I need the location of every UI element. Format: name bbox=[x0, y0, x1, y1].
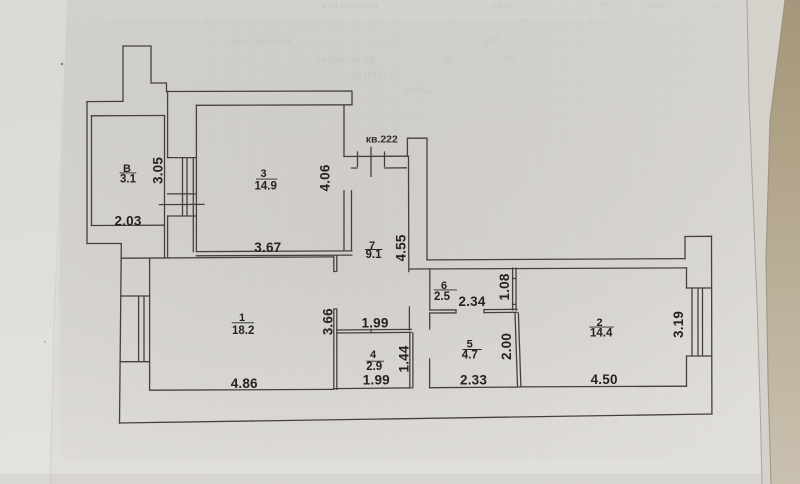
svg-text:2.5: 2.5 bbox=[434, 291, 451, 303]
svg-text:18.2: 18.2 bbox=[232, 325, 254, 337]
svg-text:1.99: 1.99 bbox=[362, 315, 389, 330]
svg-text:14.4: 14.4 bbox=[590, 328, 613, 340]
svg-text:своб: своб bbox=[648, 1, 666, 10]
svg-text:з 667вч: з 667вч bbox=[404, 87, 431, 96]
svg-text:вт: вт bbox=[390, 36, 398, 45]
svg-text:ол: ол bbox=[520, 16, 529, 25]
svg-text:пв: пв bbox=[712, 1, 721, 10]
svg-text:3.1: 3.1 bbox=[120, 173, 137, 185]
svg-text:тд: тд bbox=[680, 15, 688, 24]
svg-text:3.05: 3.05 bbox=[150, 157, 165, 184]
svg-text:9.1: 9.1 bbox=[366, 249, 383, 261]
svg-text:4: 4 bbox=[370, 349, 377, 361]
svg-text:1.44: 1.44 bbox=[397, 345, 412, 372]
svg-text:14.9: 14.9 bbox=[255, 181, 277, 193]
svg-text:1.99: 1.99 bbox=[363, 372, 390, 387]
svg-text:нгдав: нгдав bbox=[490, 1, 510, 10]
svg-text:2.9: 2.9 bbox=[366, 361, 382, 373]
svg-text:1: 1 bbox=[239, 312, 245, 324]
svg-text:нсч: нсч bbox=[504, 54, 517, 63]
svg-text:2.34: 2.34 bbox=[459, 294, 486, 309]
svg-text:н: н bbox=[452, 17, 456, 26]
svg-text:3.19: 3.19 bbox=[671, 311, 686, 338]
svg-text:1.08: 1.08 bbox=[497, 273, 512, 300]
svg-text:3: 3 bbox=[260, 168, 266, 180]
svg-text:4.55: 4.55 bbox=[394, 234, 409, 261]
svg-text:4.7: 4.7 bbox=[462, 350, 478, 362]
svg-text:4.86: 4.86 bbox=[231, 376, 258, 391]
svg-text:в: в bbox=[590, 16, 594, 25]
svg-text:кв.222: кв.222 bbox=[366, 133, 398, 145]
svg-text:заявл дилтнцчв: заявл дилтнцчв bbox=[232, 37, 290, 46]
svg-text:пв общ пдн шф: пв общ пдн шф bbox=[318, 55, 376, 64]
svg-text:4.50: 4.50 bbox=[591, 372, 618, 387]
svg-text:и: и bbox=[204, 15, 208, 24]
svg-text:4.06: 4.06 bbox=[317, 164, 332, 191]
svg-text:2.00: 2.00 bbox=[499, 333, 514, 360]
svg-text:2.33: 2.33 bbox=[460, 372, 487, 387]
svg-text:лв: лв bbox=[444, 55, 453, 64]
svg-text:нч: нч bbox=[600, 0, 609, 9]
svg-text:в ад ммирянам: в ад ммирянам bbox=[322, 1, 378, 10]
svg-text:2.03: 2.03 bbox=[115, 213, 142, 228]
svg-text:3.67: 3.67 bbox=[254, 240, 281, 255]
svg-text:1.5 1073-5 г: 1.5 1073-5 г bbox=[350, 71, 393, 80]
svg-text:3.66: 3.66 bbox=[321, 308, 336, 335]
svg-text:пдсб: пдсб bbox=[482, 36, 500, 45]
